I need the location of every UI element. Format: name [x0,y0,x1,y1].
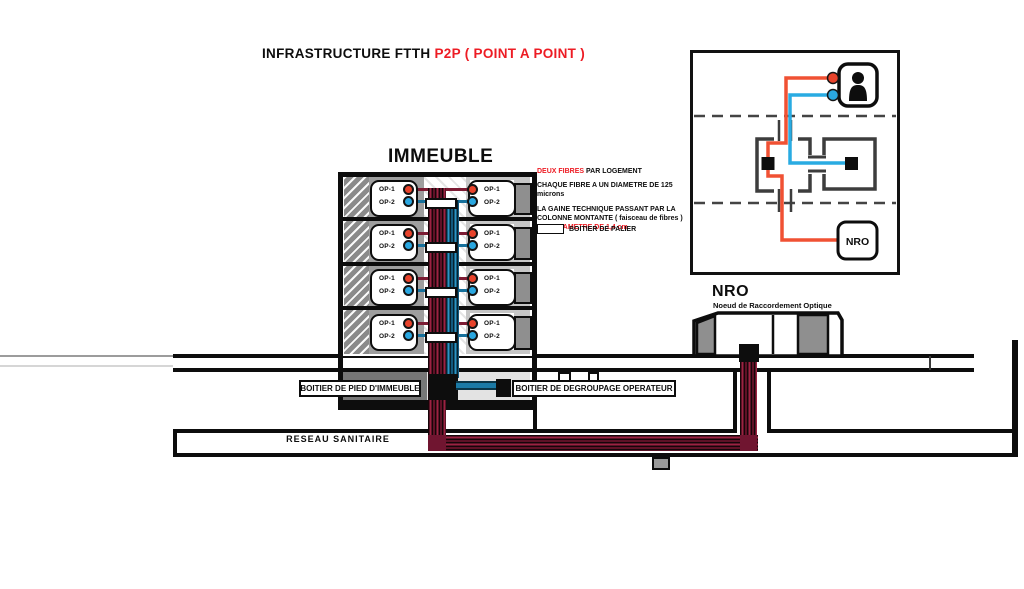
duct-top-left [173,429,737,433]
bundle-corner [428,435,446,451]
op1-label: OP-1 [379,186,395,193]
op1-connector-dot [403,228,414,239]
building-foot-box [429,374,458,400]
op1-label: OP-1 [379,275,395,282]
op2-label: OP-2 [484,243,500,250]
op1-label: OP-1 [484,230,500,237]
inset-nro-label: NRO [846,236,869,248]
op2-connector-dot [467,330,478,341]
op2-connector-dot [403,196,414,207]
ground-line-left [0,355,173,357]
op2-connector-dot [403,285,414,296]
op1-connector-dot [403,273,414,284]
op2-connector-dot [403,330,414,341]
op1-label: OP-1 [484,320,500,327]
duct-bottom [173,453,1016,457]
op2-label: OP-2 [484,333,500,340]
op2-connector-dot [828,90,839,101]
floor-door [514,227,532,260]
duct-left-cap [173,429,177,457]
inset-operator-box [845,157,858,170]
op1-connector-dot [467,228,478,239]
floor-window-hatch [344,177,369,217]
right-boundary-wall [1012,340,1018,457]
op1-connector-dot [467,318,478,329]
op1-connector-dot [403,318,414,329]
title-black: INFRASTRUCTURE FTTH [262,46,434,61]
op2-label: OP-2 [484,288,500,295]
nro-gray-section [798,315,828,354]
street-band-tick [929,356,931,370]
room-wall-pipe-right [767,372,771,429]
floor-door [514,183,532,215]
op2-connector-dot [467,285,478,296]
boitier-de-palier [425,198,457,209]
note-gaine-1: LA GAINE TECHNIQUE PASSANT PAR LA [537,205,697,214]
building-foot-box-label: BOITIER DE PIED D'IMMEUBLE [299,380,421,397]
note-gaine-2: COLONNE MONTANTE ( faisceau de fibres ) [537,214,697,223]
manhole-detail [652,457,670,470]
op1-connector-dot [828,73,839,84]
note-fiber-diameter: CHAQUE FIBRE A UN DIAMETRE DE 125 micron… [537,181,697,199]
annotations: DEUX FIBRES PAR LOGEMENT CHAQUE FIBRE A … [537,167,697,232]
op2-connector-dot [403,240,414,251]
op1-label: OP-1 [379,320,395,327]
bundle-corner [740,435,757,451]
note-fibres-per-home: DEUX FIBRES PAR LOGEMENT [537,167,697,176]
boitier-de-palier [425,287,457,298]
op2-connector-dot [467,196,478,207]
nro-side-wall [697,316,715,354]
reseau-sanitaire-label: RESEAU SANITAIRE [258,434,418,444]
duct-top-right [767,429,1016,433]
operator-box [496,379,511,397]
op2-label: OP-2 [379,199,395,206]
street-band [173,354,974,372]
floor-window-hatch [344,266,369,306]
op2-label: OP-2 [379,288,395,295]
palier-legend: BOITIER DE PALIER [537,224,636,234]
floor-window-hatch [344,310,369,354]
page-title: INFRASTRUCTURE FTTH P2P ( POINT A POINT … [262,46,585,61]
floor-window-hatch [344,221,369,262]
floor-door [514,316,532,350]
operator-link-cable [456,381,498,390]
riser-fiber-bundle-red [428,188,446,451]
op1-label: OP-1 [484,275,500,282]
room-wall-pipe-left [733,372,737,429]
nro-title: NRO [712,283,749,301]
building-wall-left [338,172,343,410]
op2-label: OP-2 [379,333,395,340]
duct-fiber-bundle [428,435,758,451]
title-red: P2P ( POINT A POINT ) [434,46,585,61]
boitier-de-palier [425,332,457,343]
boitier-de-palier [425,242,457,253]
building-title: IMMEUBLE [388,146,493,168]
inset-foot-box [762,157,775,170]
op2-connector-dot [467,240,478,251]
inset-schematic: NRO [690,50,900,275]
floor-door [514,272,532,304]
person-icon [852,72,864,84]
op1-connector-dot [467,273,478,284]
palier-legend-swatch [537,224,564,234]
op1-connector-dot [403,184,414,195]
operator-box-label: BOITIER DE DEGROUPAGE OPERATEUR [512,380,676,397]
op1-connector-dot [467,184,478,195]
ftth-diagram: RESEAU SANITAIRE IMMEUBLE OP-1 OP-2 OP-1… [0,0,1024,589]
nro-cable-entry-box [739,344,759,362]
palier-legend-label: BOITIER DE PALIER [569,226,636,233]
op1-label: OP-1 [484,186,500,193]
op2-label: OP-2 [379,243,395,250]
op2-label: OP-2 [484,199,500,206]
op1-label: OP-1 [379,230,395,237]
nro-subtitle: Noeud de Raccordement Optique [713,301,832,310]
